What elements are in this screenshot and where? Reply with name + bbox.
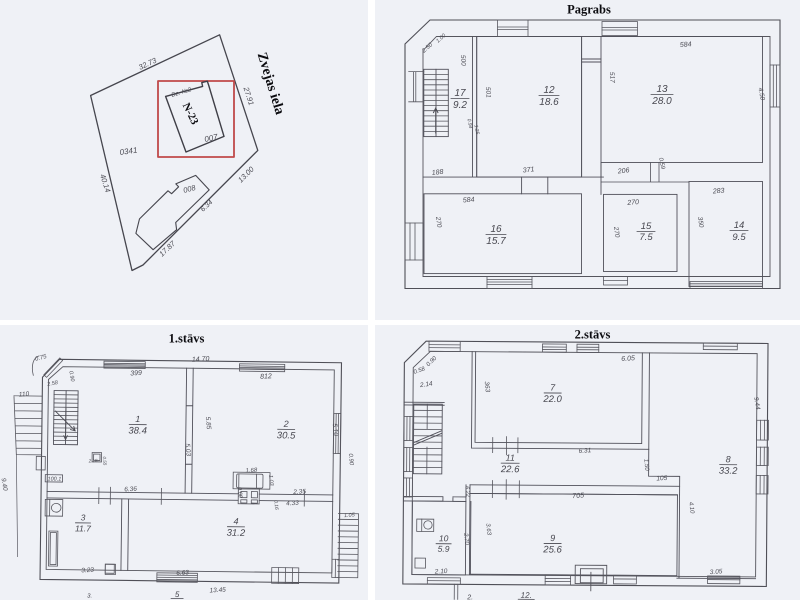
- svg-text:11.7: 11.7: [75, 523, 91, 533]
- svg-text:22.0: 22.0: [542, 394, 562, 405]
- svg-text:15: 15: [641, 221, 652, 232]
- svg-text:14.70: 14.70: [192, 356, 210, 364]
- svg-text:0.90: 0.90: [347, 453, 354, 466]
- svg-text:25.6: 25.6: [542, 544, 562, 555]
- svg-text:33.2: 33.2: [719, 466, 738, 477]
- svg-text:3.05: 3.05: [710, 568, 723, 576]
- svg-text:40.14: 40.14: [98, 173, 112, 194]
- svg-text:10: 10: [439, 533, 449, 543]
- svg-text:270: 270: [626, 199, 639, 207]
- svg-text:0.90: 0.90: [426, 355, 439, 368]
- svg-text:2: 2: [283, 419, 289, 429]
- svg-text:1.05: 1.05: [344, 512, 356, 519]
- svg-text:9.40: 9.40: [0, 478, 9, 492]
- svg-text:3.23: 3.23: [81, 567, 94, 575]
- svg-text:Pagrabs: Pagrabs: [567, 3, 611, 17]
- svg-text:812: 812: [260, 373, 272, 381]
- svg-text:6.31: 6.31: [578, 447, 591, 455]
- svg-text:1.25: 1.25: [473, 124, 481, 135]
- svg-text:2.70: 2.70: [462, 532, 469, 546]
- svg-text:18.6: 18.6: [539, 97, 559, 108]
- svg-text:5.9: 5.9: [438, 544, 450, 554]
- svg-text:6.63: 6.63: [176, 569, 189, 577]
- svg-text:7.5: 7.5: [639, 232, 653, 243]
- svg-text:3.: 3.: [87, 593, 92, 599]
- svg-text:17: 17: [454, 88, 466, 99]
- svg-text:4.33: 4.33: [286, 500, 299, 508]
- svg-text:110: 110: [19, 391, 30, 399]
- svg-text:Dz. №2: Dz. №2: [171, 86, 193, 99]
- svg-text:0.59: 0.59: [657, 157, 665, 170]
- svg-text:15.7: 15.7: [486, 236, 506, 247]
- svg-text:6.34: 6.34: [200, 199, 215, 213]
- svg-text:27.91: 27.91: [241, 85, 256, 107]
- svg-text:3.63: 3.63: [484, 523, 491, 536]
- svg-text:5.10: 5.10: [331, 423, 339, 437]
- svg-text:1.stāvs: 1.stāvs: [169, 332, 205, 346]
- svg-text:13.45: 13.45: [209, 587, 226, 595]
- svg-text:363: 363: [483, 381, 491, 393]
- svg-text:705: 705: [572, 492, 584, 500]
- svg-text:4: 4: [233, 516, 238, 526]
- svg-text:11: 11: [506, 453, 515, 463]
- svg-text:2.35: 2.35: [292, 488, 306, 496]
- svg-text:584: 584: [680, 41, 692, 49]
- svg-text:0341: 0341: [119, 146, 138, 157]
- svg-text:22.6: 22.6: [500, 464, 520, 475]
- svg-text:500: 500: [459, 55, 467, 67]
- svg-text:517: 517: [608, 72, 616, 84]
- svg-text:3: 3: [81, 512, 86, 522]
- svg-text:206: 206: [616, 167, 629, 175]
- svg-text:38.4: 38.4: [128, 425, 147, 436]
- svg-text:1.50: 1.50: [642, 459, 649, 472]
- svg-text:2.: 2.: [466, 594, 473, 600]
- svg-text:1.68: 1.68: [245, 468, 258, 475]
- svg-text:2.10: 2.10: [434, 568, 448, 576]
- svg-text:13: 13: [656, 84, 668, 95]
- svg-text:1.03: 1.03: [267, 475, 274, 487]
- svg-text:270: 270: [434, 215, 443, 228]
- svg-text:501: 501: [484, 87, 492, 99]
- svg-text:6.22: 6.22: [464, 486, 471, 497]
- svg-text:2.14: 2.14: [419, 380, 434, 389]
- svg-text:8: 8: [726, 454, 731, 464]
- svg-text:1: 1: [135, 414, 140, 424]
- svg-text:Zvejas iela: Zvejas iela: [254, 51, 287, 117]
- svg-text:0.75: 0.75: [35, 354, 48, 363]
- svg-text:008: 008: [182, 183, 197, 195]
- svg-text:188: 188: [431, 169, 443, 177]
- svg-text:0.90: 0.90: [67, 371, 75, 383]
- svg-text:30.5: 30.5: [277, 430, 296, 441]
- svg-text:6.05: 6.05: [621, 355, 635, 363]
- svg-text:2.stāvs: 2.stāvs: [575, 328, 611, 342]
- svg-text:5: 5: [175, 590, 180, 599]
- svg-text:28.0: 28.0: [651, 96, 672, 107]
- svg-text:7: 7: [550, 382, 556, 392]
- svg-text:1.00: 1.00: [435, 32, 448, 44]
- svg-text:399: 399: [130, 370, 142, 378]
- svg-text:2.58: 2.58: [46, 380, 60, 388]
- svg-text:0.55: 0.55: [102, 456, 108, 466]
- svg-text:9.44: 9.44: [752, 397, 761, 411]
- svg-text:17.87: 17.87: [157, 239, 177, 259]
- svg-text:5.85: 5.85: [204, 416, 212, 430]
- svg-text:9.5: 9.5: [732, 232, 746, 243]
- svg-text:0.60: 0.60: [236, 487, 243, 499]
- svg-text:2.18: 2.18: [88, 458, 99, 464]
- svg-text:584: 584: [463, 196, 475, 204]
- svg-text:N-23: N-23: [180, 101, 201, 127]
- svg-text:5.03: 5.03: [183, 443, 191, 457]
- svg-text:4.50: 4.50: [757, 87, 766, 101]
- svg-text:270: 270: [612, 225, 621, 238]
- svg-text:0.16: 0.16: [272, 500, 279, 510]
- svg-text:4.10: 4.10: [687, 502, 694, 515]
- svg-text:0.94: 0.94: [466, 118, 474, 129]
- svg-text:12.: 12.: [521, 591, 532, 600]
- svg-text:31.2: 31.2: [227, 528, 246, 539]
- svg-text:0.58: 0.58: [413, 366, 427, 376]
- svg-text:13.00: 13.00: [236, 164, 256, 184]
- svg-text:283: 283: [712, 187, 725, 195]
- svg-text:350: 350: [696, 216, 704, 228]
- svg-text:32.73: 32.73: [137, 55, 159, 71]
- svg-text:12: 12: [543, 85, 555, 96]
- svg-text:007: 007: [204, 132, 219, 144]
- svg-text:105: 105: [656, 475, 668, 483]
- svg-text:9.2: 9.2: [453, 100, 467, 111]
- svg-text:100.1: 100.1: [48, 476, 62, 482]
- svg-text:14: 14: [734, 220, 745, 231]
- svg-text:371: 371: [522, 166, 534, 174]
- svg-text:16: 16: [490, 224, 502, 235]
- svg-text:9: 9: [550, 533, 555, 543]
- svg-text:6.36: 6.36: [124, 486, 137, 494]
